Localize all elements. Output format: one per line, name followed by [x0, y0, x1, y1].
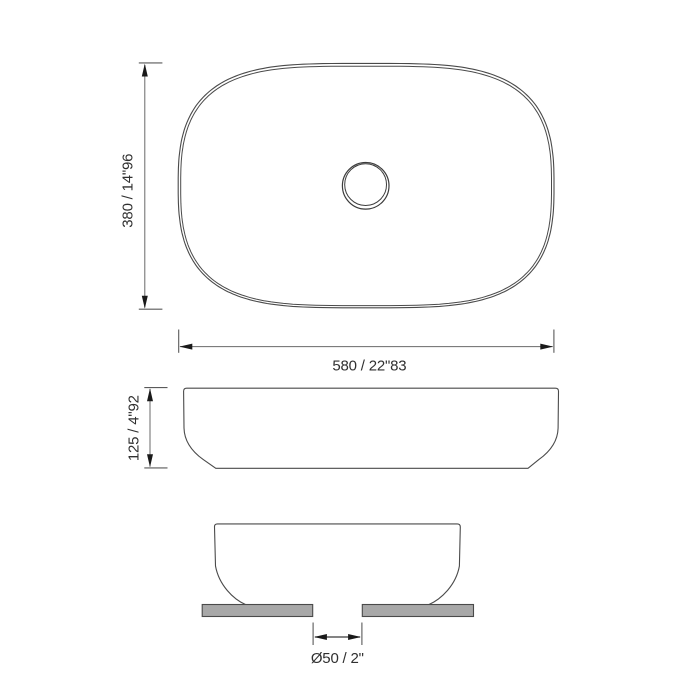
svg-text:580 / 22"83: 580 / 22"83 [332, 357, 406, 374]
svg-text:Ø50 / 2": Ø50 / 2" [311, 650, 364, 667]
svg-text:125 / 4"92: 125 / 4"92 [126, 395, 143, 461]
svg-text:380 / 14"96: 380 / 14"96 [120, 154, 137, 228]
